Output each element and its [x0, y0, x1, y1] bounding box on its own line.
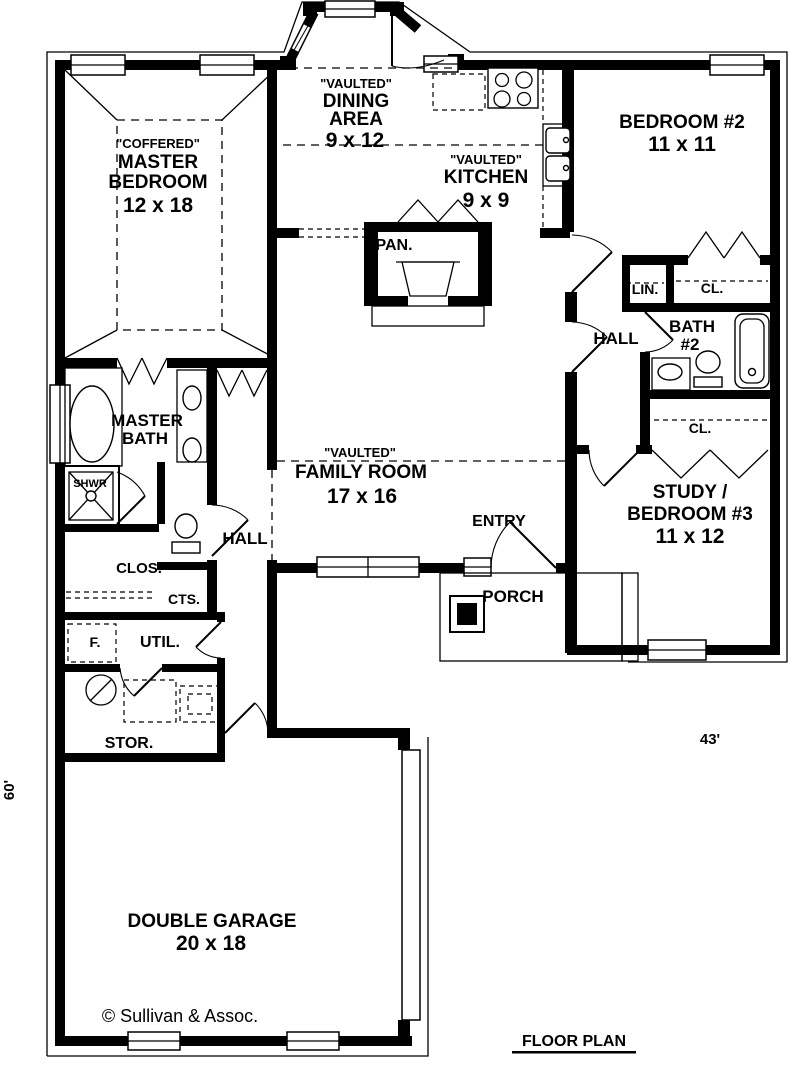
label-porch: PORCH: [482, 587, 543, 606]
label-bedroom2-size: 11 x 11: [648, 133, 716, 156]
study-closet-bifold-door: [652, 450, 710, 478]
dimension-width: 43': [700, 731, 720, 748]
bedroom2-door: [572, 235, 612, 292]
label-garage-name: DOUBLE GARAGE: [128, 911, 297, 932]
label-bath2-name2: #2: [681, 335, 700, 354]
master-tub: [70, 386, 114, 462]
fireplace: [372, 262, 484, 326]
label-study-name2: BEDROOM #3: [627, 504, 753, 525]
shower-door: [117, 472, 145, 524]
label-linen: LIN.: [632, 281, 658, 297]
label-entry: ENTRY: [472, 513, 526, 530]
drawing-title-underline: [512, 1051, 636, 1054]
label-shower: SHWR: [73, 478, 107, 490]
hall-opening-double-door: [217, 370, 242, 396]
label-dining-ceiling: "VAULTED": [320, 76, 392, 91]
hearth: [372, 306, 484, 326]
pantry-bifold-door: [398, 200, 438, 222]
label-bedroom2-name: BEDROOM #2: [619, 112, 745, 133]
label-master-bedroom-size: 12 x 18: [123, 194, 193, 217]
label-storage: STOR.: [105, 735, 154, 752]
master-toilet: [175, 514, 197, 538]
label-utility: UTIL.: [140, 634, 180, 651]
label-master-bedroom-ceiling: "COFFERED": [116, 136, 200, 151]
storage-door: [120, 668, 162, 696]
label-hall-left: HALL: [222, 529, 267, 548]
label-family-room-size: 17 x 16: [327, 485, 397, 508]
label-dining-name2: AREA: [329, 109, 383, 130]
garage-door: [402, 750, 420, 1020]
floor-plan-page: "COFFERED" MASTER BEDROOM 12 x 18 "VAULT…: [0, 0, 800, 1075]
label-kitchen-ceiling: "VAULTED": [450, 152, 522, 167]
label-kitchen-name: KITCHEN: [444, 167, 528, 188]
copyright-text: © Sullivan & Assoc.: [102, 1006, 258, 1026]
master-bedroom-double-door: [117, 358, 142, 384]
label-bedroom2-closet: CL.: [701, 280, 724, 296]
study-door: [589, 450, 640, 486]
utility-door: [196, 622, 221, 658]
dryer: [180, 686, 220, 722]
label-coat-closet: CTS.: [168, 591, 200, 607]
label-family-room-ceiling: "VAULTED": [324, 445, 396, 460]
label-master-bath-name1: MASTER: [111, 411, 183, 430]
label-master-bedroom-name2: BEDROOM: [108, 172, 207, 193]
label-study-name1: STUDY /: [653, 482, 728, 503]
floor-plan-drawing: "COFFERED" MASTER BEDROOM 12 x 18 "VAULT…: [0, 0, 800, 1075]
drawing-title: FLOOR PLAN: [522, 1033, 626, 1050]
label-dining-size: 9 x 12: [326, 129, 384, 152]
label-bath2-name1: BATH: [669, 317, 715, 336]
stove: [488, 68, 538, 108]
label-pantry: PAN.: [375, 237, 412, 254]
bath2-toilet: [696, 351, 720, 373]
dimension-depth: 60': [1, 780, 18, 800]
label-master-bath-name2: BATH: [122, 429, 168, 448]
label-master-bedroom-name1: MASTER: [118, 152, 199, 173]
label-kitchen-size: 9 x 9: [463, 189, 510, 212]
bedroom2-closet-bifold-door: [688, 232, 724, 258]
washer: [124, 680, 176, 722]
label-study-size: 11 x 12: [656, 525, 725, 548]
label-study-closet: CL.: [689, 420, 712, 436]
label-family-room-name: FAMILY ROOM: [295, 462, 427, 483]
label-hall-right: HALL: [593, 329, 638, 348]
garage-entry-door: [225, 703, 268, 733]
label-master-closet: CLOS.: [116, 560, 162, 577]
refrigerator: [433, 74, 485, 110]
label-freezer: F.: [90, 634, 101, 650]
label-garage-size: 20 x 18: [176, 932, 246, 955]
